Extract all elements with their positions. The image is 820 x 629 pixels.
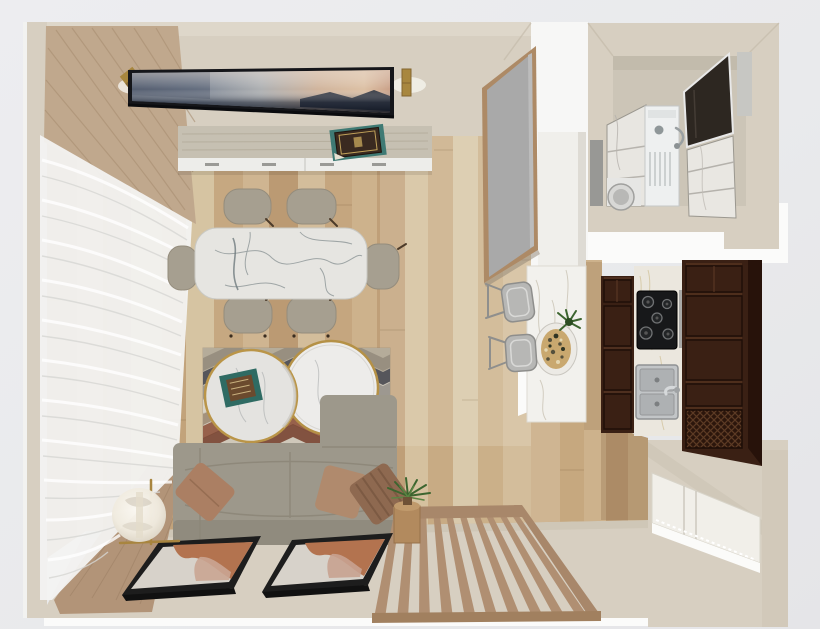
entry bbox=[648, 440, 788, 627]
double-sink[interactable] bbox=[636, 365, 680, 419]
lounge bbox=[173, 341, 413, 545]
bathroom bbox=[588, 23, 779, 249]
gas-cooktop[interactable] bbox=[637, 291, 677, 349]
decor-book[interactable] bbox=[329, 124, 386, 161]
bath-side-strip bbox=[590, 140, 603, 206]
washing-machine[interactable] bbox=[607, 178, 641, 210]
leaning-mirror[interactable] bbox=[482, 46, 540, 287]
cabinet-right[interactable] bbox=[682, 260, 762, 466]
serving-plate[interactable] bbox=[535, 323, 577, 375]
dining-table[interactable] bbox=[195, 228, 367, 299]
media-console[interactable] bbox=[178, 126, 432, 175]
wall-panel bbox=[737, 52, 752, 116]
partition-edge bbox=[578, 132, 586, 285]
vanity-unit[interactable] bbox=[645, 106, 683, 206]
shower-panel-right[interactable] bbox=[687, 136, 736, 218]
cabinet-left[interactable] bbox=[601, 276, 634, 433]
render-canvas bbox=[0, 0, 820, 629]
lattice-vent bbox=[686, 410, 742, 448]
